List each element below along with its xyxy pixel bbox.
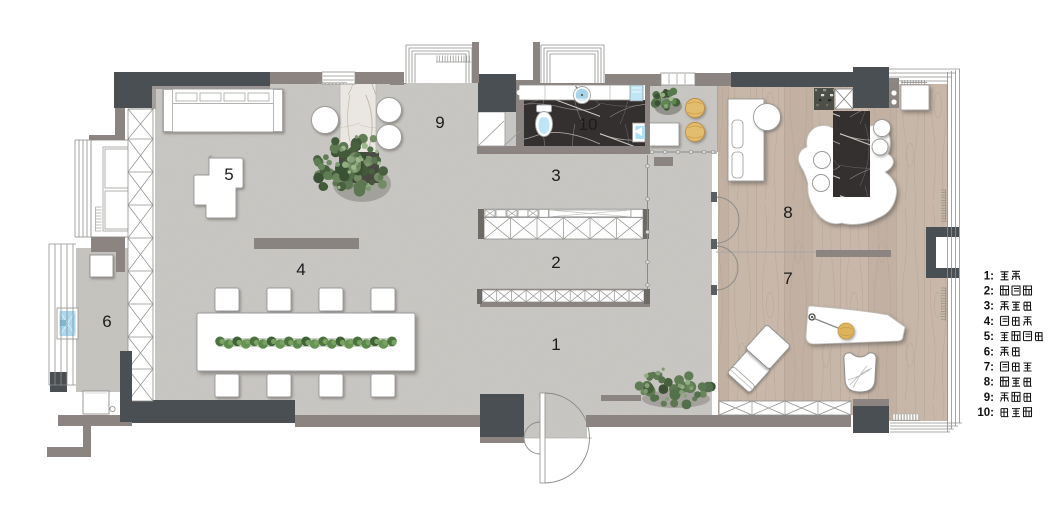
svg-text:5:: 5:: [984, 331, 994, 343]
svg-text:4: 4: [296, 260, 305, 279]
svg-text:8: 8: [783, 203, 792, 222]
svg-text:10: 10: [579, 115, 598, 134]
svg-text:4:: 4:: [984, 316, 994, 328]
svg-text:3:: 3:: [984, 301, 994, 313]
svg-text:8:: 8:: [984, 377, 994, 389]
svg-text:6: 6: [102, 312, 111, 331]
svg-text:9:: 9:: [984, 392, 994, 404]
svg-text:1:: 1:: [984, 270, 994, 282]
svg-text:7: 7: [783, 269, 792, 288]
svg-text:3: 3: [551, 166, 560, 185]
svg-text:1: 1: [551, 335, 560, 354]
svg-text:7:: 7:: [984, 362, 994, 374]
svg-text:2:: 2:: [984, 286, 994, 298]
svg-text:5: 5: [224, 165, 233, 184]
svg-text:2: 2: [551, 253, 560, 272]
svg-text:9: 9: [435, 113, 444, 132]
svg-text:6:: 6:: [984, 346, 994, 358]
svg-text:10:: 10:: [977, 407, 994, 419]
